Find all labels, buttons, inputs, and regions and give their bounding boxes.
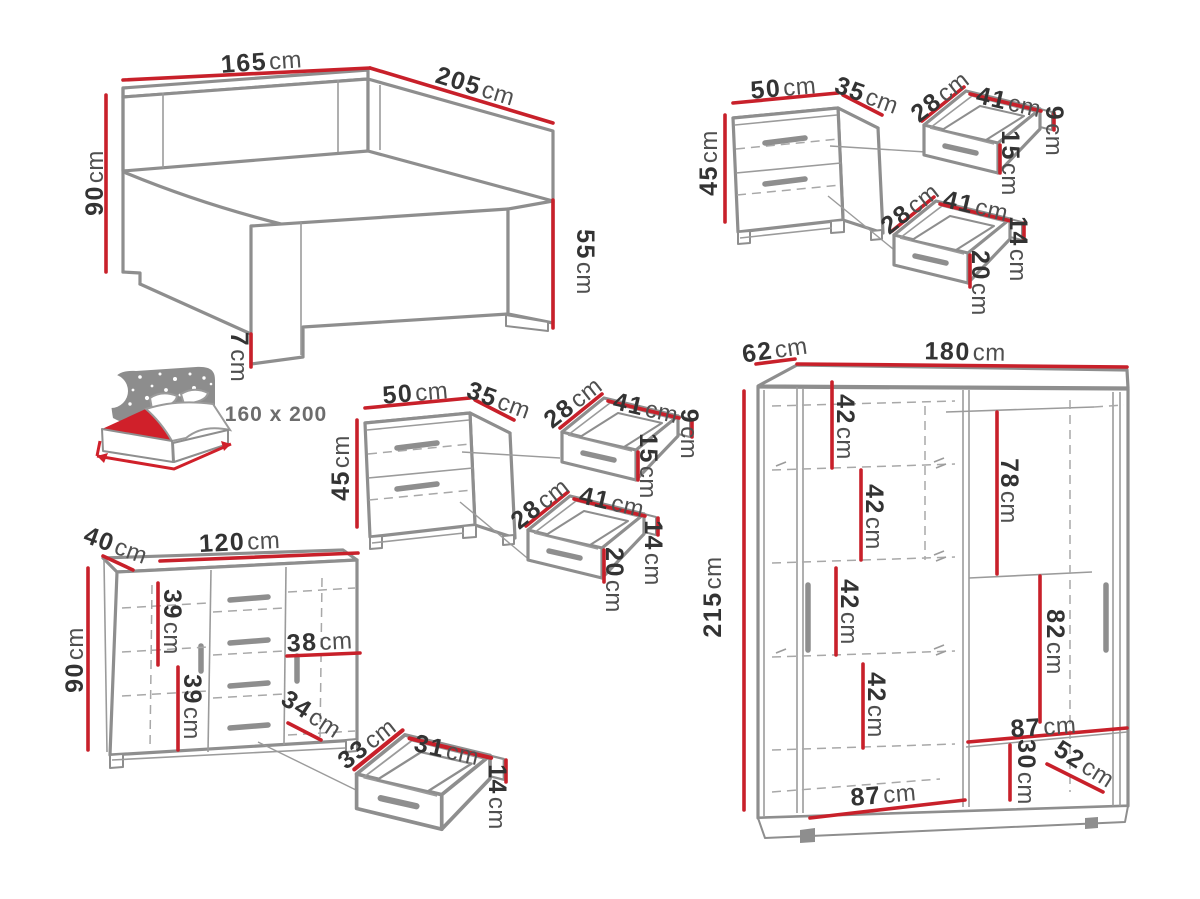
- wardrobe-diagram: 62cm 180cm 215cm 42cm 42cm 42cm 42cm 78c…: [699, 332, 1128, 843]
- dim-nsr-td-front: 15cm: [996, 130, 1024, 196]
- dresser-drawer: 33cm 31cm 14cm: [333, 712, 511, 830]
- dim-nsl-height: 45cm: [327, 435, 355, 501]
- dim-bed-footboard-height: 55cm: [571, 229, 599, 295]
- dim-dresser-drw-height: 14cm: [483, 764, 511, 830]
- nsr-top-drawer: 28cm 41cm 9cm 15cm: [906, 65, 1068, 196]
- bed-drawing: [123, 70, 553, 364]
- diagram-canvas: 165cm 205cm 90cm 55cm 7cm 160 x 200: [0, 0, 1200, 899]
- dim-wardrobe-bottom-height: 30cm: [1012, 739, 1040, 805]
- dim-dresser-width: 120cm: [198, 526, 281, 558]
- dim-wardrobe-hanging-top: 78cm: [995, 458, 1023, 524]
- dim-nsl-td-back: 9cm: [675, 409, 703, 459]
- dim-nsr-bd-front: 20cm: [966, 250, 994, 316]
- furniture-dimension-diagram: 165cm 205cm 90cm 55cm 7cm 160 x 200: [0, 0, 1200, 899]
- dim-wardrobe-height: 215cm: [699, 556, 727, 637]
- dim-wardrobe-shelf4: 42cm: [862, 672, 890, 738]
- dim-nsr-width: 50cm: [749, 71, 817, 105]
- dim-bed-leg-height: 7cm: [225, 332, 253, 382]
- dim-nsl-td-front: 15cm: [634, 433, 662, 499]
- nsr-bottom-drawer: 28cm 41cm 14cm 20cm: [876, 177, 1032, 316]
- dim-wardrobe-width: 180cm: [924, 337, 1006, 366]
- dim-nsr-td-back: 9cm: [1040, 106, 1068, 156]
- dresser-diagram: 40cm 120cm 90cm 39cm 39cm 38cm 34cm 33cm…: [61, 521, 511, 830]
- bed-diagram: 165cm 205cm 90cm 55cm 7cm: [81, 45, 599, 382]
- dim-wardrobe-shelf1: 42cm: [831, 394, 859, 460]
- dim-nsr-height: 45cm: [695, 130, 723, 196]
- dim-wardrobe-shelf2: 42cm: [860, 484, 888, 550]
- dim-dresser-upper: 39cm: [158, 589, 186, 655]
- dim-dresser-height: 90cm: [61, 627, 89, 693]
- dim-wardrobe-left-width: 87cm: [849, 778, 917, 812]
- nsl-top-drawer: 28cm 41cm 9cm 15cm: [539, 371, 703, 499]
- mattress-size-label: 160 x 200: [225, 403, 327, 426]
- dim-nsl-width: 50cm: [381, 376, 449, 410]
- dim-dresser-door: 38cm: [286, 626, 353, 657]
- dim-nsl-bd-back: 14cm: [639, 520, 667, 586]
- nightstand-right: 50cm 35cm 45cm 28cm 41cm 9cm 15cm 28cm 4…: [695, 65, 1068, 316]
- nightstand-left: 50cm 35cm 45cm 28cm 41cm 9cm 15cm 28cm 4…: [327, 371, 703, 613]
- dim-wardrobe-hanging-bottom: 82cm: [1041, 609, 1069, 675]
- dim-wardrobe-shelf3: 42cm: [835, 579, 863, 645]
- dim-nsl-bd-front: 20cm: [600, 547, 628, 613]
- dim-bed-headboard-height: 90cm: [81, 150, 109, 216]
- dim-nsr-bd-back: 14cm: [1004, 216, 1032, 282]
- dim-dresser-lower: 39cm: [178, 674, 206, 740]
- dim-bed-width: 165cm: [220, 45, 303, 79]
- mattress-size-icon: 160 x 200: [94, 367, 327, 469]
